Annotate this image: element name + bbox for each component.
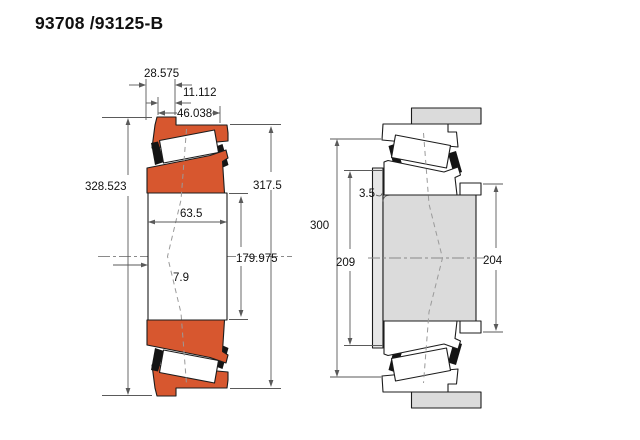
bearing-drawing: 28.575 11.112 46.038	[0, 0, 640, 440]
upper-bearing-row	[147, 117, 229, 193]
dim-label-bore-diameter: 179.975	[236, 253, 278, 265]
housing	[412, 108, 482, 124]
dim-label-shaft-shoulder: 209	[336, 257, 355, 269]
inner-ring-cone	[384, 161, 461, 196]
dim-label-flange-diameter: 328.523	[85, 181, 127, 193]
left-section-view: 28.575 11.112 46.038	[85, 68, 292, 396]
technical-drawing-page: 93708 /93125-B	[0, 0, 640, 440]
upper-mounted-bearing	[382, 108, 481, 195]
dim-label-total-width: 46.038	[177, 108, 212, 120]
inner-ring-cone	[384, 321, 461, 356]
right-mounting-view: 300 209 204 3.5	[310, 108, 503, 408]
housing	[412, 392, 482, 408]
lower-bearing-row	[147, 320, 229, 396]
dim-label-spacer-diameter: 204	[483, 255, 503, 267]
dim-label-outer-diameter: 317.5	[253, 180, 282, 192]
dim-label-housing-shoulder: 300	[310, 220, 329, 232]
dim-label-cup-width: 28.575	[144, 68, 179, 80]
spacer-ring	[460, 321, 481, 333]
dim-label-stand-out: 11.112	[183, 87, 216, 99]
spacer-ring	[460, 183, 481, 195]
dim-label-spread: 63.5	[180, 208, 202, 220]
dim-label-fillet-radius: 3.5	[359, 188, 375, 200]
lower-mounted-bearing	[382, 321, 481, 408]
dim-label-offset: 7.9	[173, 272, 189, 284]
